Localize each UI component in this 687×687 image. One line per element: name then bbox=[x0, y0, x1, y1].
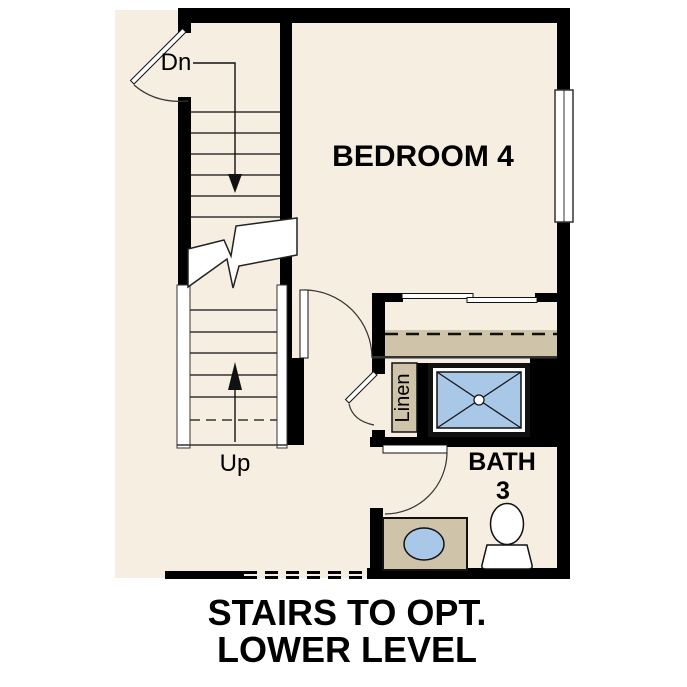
label-bath: BATH bbox=[468, 448, 536, 476]
label-dn: Dn bbox=[161, 49, 192, 76]
floorplan-drawing: Dn BEDROOM 4 Up Linen BATH 3 STAIRS TO O… bbox=[0, 0, 687, 687]
caption-line2: LOWER LEVEL bbox=[217, 629, 477, 670]
window bbox=[555, 90, 573, 222]
wall-top bbox=[178, 8, 570, 23]
wall-right-mid bbox=[557, 222, 570, 358]
caption: STAIRS TO OPT. LOWER LEVEL bbox=[208, 592, 487, 670]
wall-bottom-left bbox=[165, 571, 244, 579]
toilet-bowl bbox=[491, 504, 524, 545]
closet-bypass-door-left bbox=[402, 294, 473, 299]
vanity bbox=[383, 518, 467, 570]
label-linen: Linen bbox=[392, 374, 414, 423]
caption-line1: STAIRS TO OPT. bbox=[208, 592, 487, 633]
wall-closet-top-right bbox=[535, 293, 557, 302]
stair-stringer-right bbox=[277, 285, 287, 448]
sink bbox=[404, 528, 444, 560]
closet-bypass-door-right bbox=[467, 298, 537, 303]
bath-door-leaf bbox=[383, 445, 447, 453]
wall-right-top bbox=[557, 8, 570, 90]
wall-bath-west bbox=[370, 508, 383, 571]
label-bath-number: 3 bbox=[496, 477, 510, 505]
label-bedroom: BEDROOM 4 bbox=[332, 140, 514, 173]
floorplan-page: Dn BEDROOM 4 Up Linen BATH 3 STAIRS TO O… bbox=[0, 0, 687, 687]
bedroom-door-leaf bbox=[300, 290, 308, 358]
wall-closet-top-left bbox=[372, 293, 403, 302]
stair-stringer-left bbox=[177, 285, 190, 448]
closet-shelf-edge bbox=[372, 356, 557, 359]
wall-shower-east-block bbox=[530, 358, 570, 437]
wall-closet-west-upper bbox=[372, 293, 385, 374]
shower bbox=[428, 363, 530, 437]
wall-right-bath bbox=[557, 437, 570, 568]
wall-linen-shower-divider bbox=[417, 363, 428, 437]
shower-drain bbox=[474, 395, 484, 405]
label-up: Up bbox=[220, 450, 251, 477]
wall-stair-hall-lower bbox=[287, 371, 304, 445]
toilet-tank bbox=[482, 545, 532, 569]
